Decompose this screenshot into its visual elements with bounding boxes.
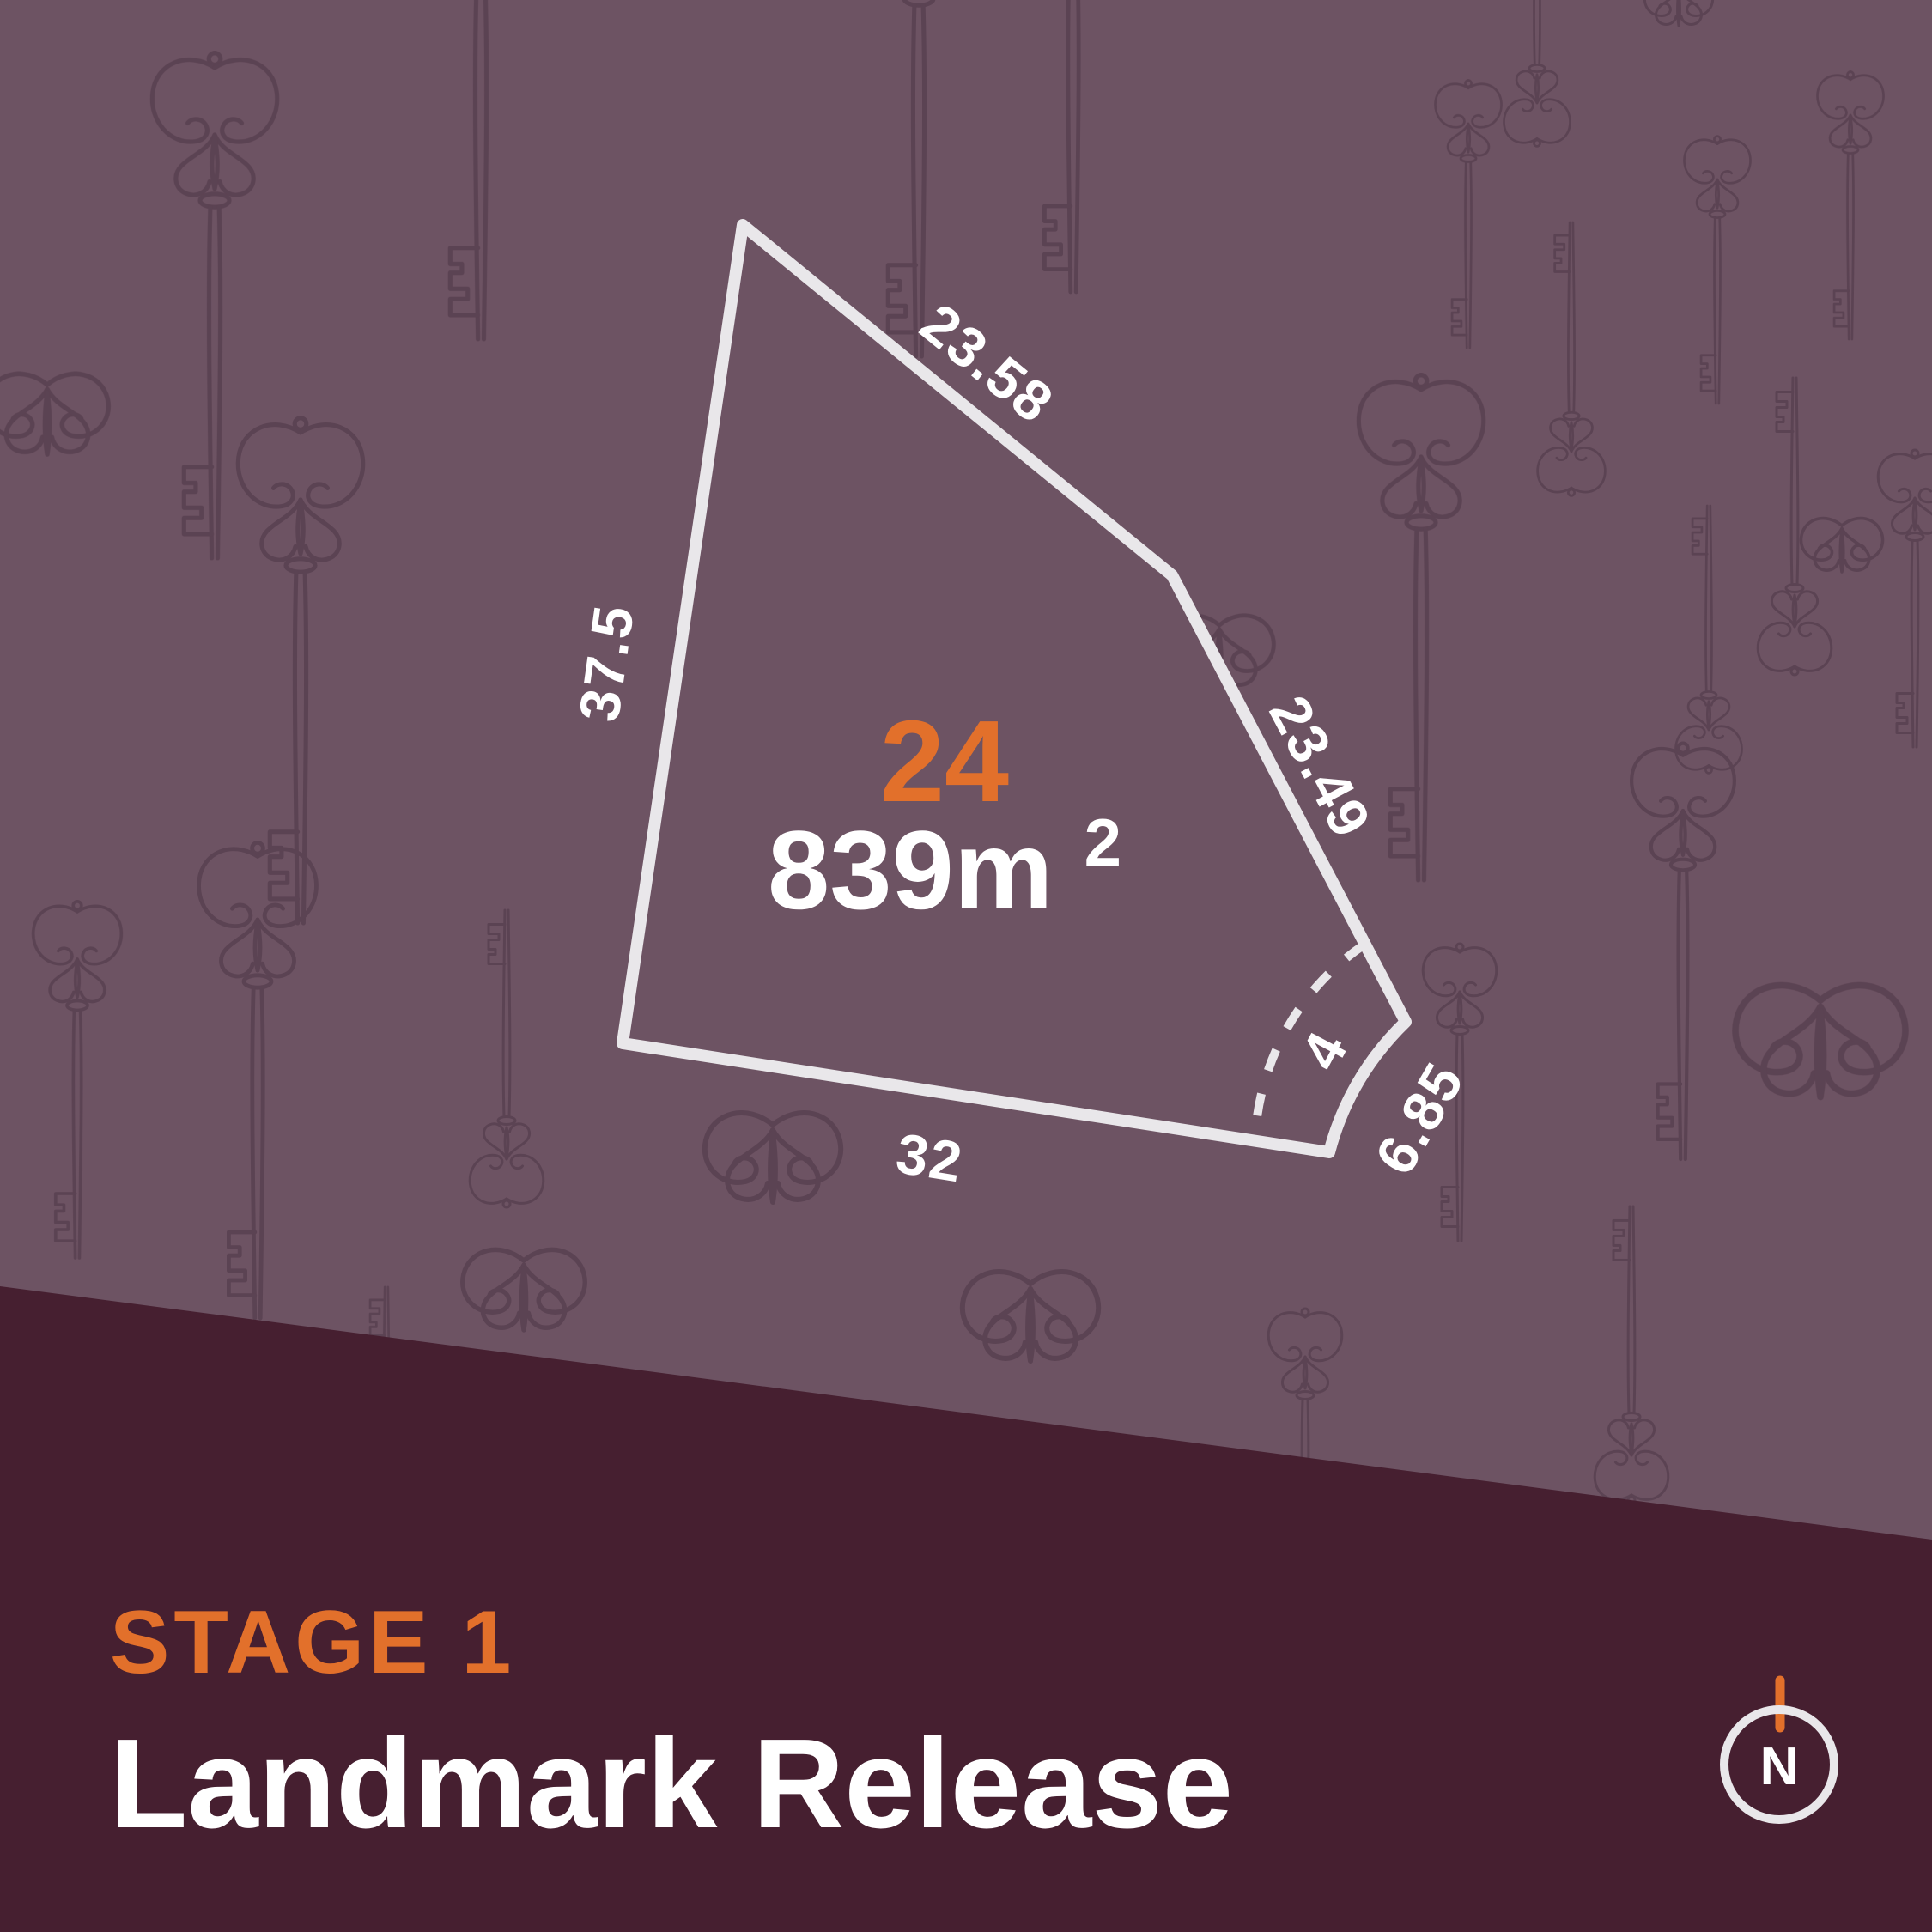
lot-area-value: 839m <box>768 807 1054 933</box>
release-title: Landmark Release <box>110 1713 1233 1855</box>
lot-area-superscript: 2 <box>1084 805 1121 880</box>
stage-label: STAGE 1 <box>110 1593 515 1692</box>
dim-bottom-edge: 32 <box>892 1121 968 1194</box>
lot-area: 839m 2 <box>768 805 1121 933</box>
north-icon: N <box>1760 1737 1799 1796</box>
lot-plan-canvas: 23.58 23.49 37.5 32 4 6.85 24 839m 2 STA… <box>0 0 1932 1932</box>
